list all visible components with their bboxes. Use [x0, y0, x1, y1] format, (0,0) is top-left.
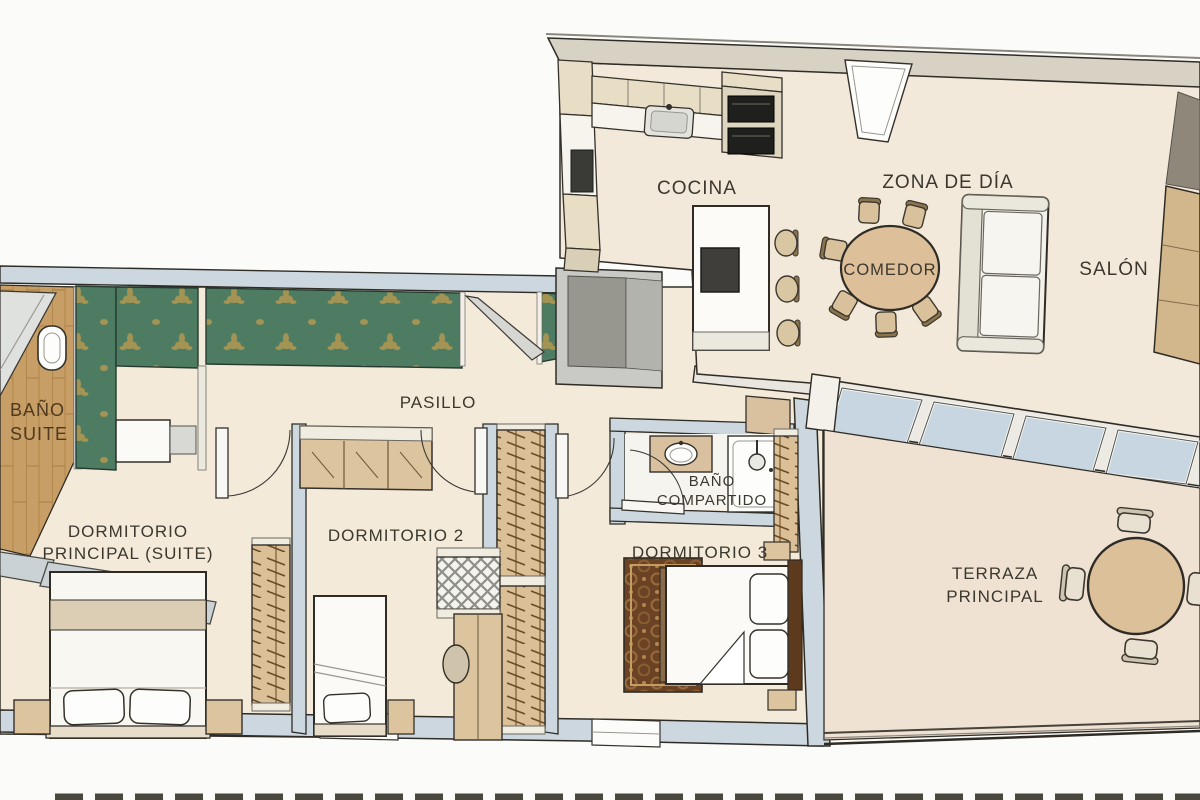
wardrobe-suite [252, 545, 290, 705]
wallpaper-wall-hall-left [206, 288, 462, 368]
chair-icon [857, 197, 880, 223]
floor-plan-canvas: COCINA ZONA DE DÍA COMEDOR SALÓN PASILLO… [0, 0, 1200, 800]
room-label-salon: SALÓN [1079, 258, 1148, 280]
room-label-bano-compartido-1: BAÑO [689, 473, 736, 490]
door-dorm-principal [216, 428, 228, 498]
pillow [63, 689, 124, 725]
pillow [750, 574, 788, 624]
glass-wall-post [806, 374, 840, 432]
room-label-zona-de-dia: ZONA DE DÍA [882, 172, 1013, 193]
wardrobe-dorm3 [774, 436, 798, 552]
room-label-cocina: COCINA [657, 178, 737, 199]
door-dorm-3 [556, 434, 568, 498]
entry-vestibule [556, 268, 662, 388]
nightstand [388, 700, 414, 734]
sofa [957, 195, 1048, 354]
room-label-comedor: COMEDOR [843, 261, 936, 279]
room-label-pasillo: PASILLO [400, 393, 477, 412]
room-label-dormitorio-3: DORMITORIO 3 [632, 543, 768, 562]
terrace-table [1088, 538, 1184, 634]
bed-dorm2 [314, 596, 386, 736]
nightstand [768, 690, 796, 710]
wardrobe-column-upper [497, 430, 545, 578]
stool-icon [777, 320, 800, 346]
terrace-zone [806, 374, 1200, 744]
stool-icon [775, 230, 798, 256]
bed-principal [46, 572, 210, 738]
desk-chair [443, 645, 469, 683]
room-label-dormitorio-principal-2: PRINCIPAL (SUITE) [43, 544, 214, 563]
room-label-dormitorio-principal-1: DORMITORIO [68, 522, 188, 541]
nightstand [206, 700, 242, 734]
oven-icon [728, 96, 774, 122]
door-dorm-2 [475, 428, 487, 494]
pillow [750, 630, 788, 678]
lattice-screen [437, 548, 500, 618]
kitchen-sink-icon [644, 102, 694, 138]
room-label-bano-suite-2: SUITE [10, 424, 68, 444]
pillow [129, 689, 190, 725]
chair-icon [1115, 507, 1153, 534]
room-label-terraza-1: TERRAZA [952, 564, 1038, 583]
room-label-bano-compartido-2: COMPARTIDO [657, 492, 767, 509]
appliance-icon [571, 150, 593, 192]
nightstand [14, 700, 50, 734]
chair-icon [1059, 565, 1086, 603]
floor-plan: COCINA ZONA DE DÍA COMEDOR SALÓN PASILLO… [0, 0, 1200, 800]
stool-icon [776, 276, 799, 302]
window-dormitorio-3 [592, 719, 660, 747]
room-label-dormitorio-2: DORMITORIO 2 [328, 526, 464, 545]
chair-icon [1122, 638, 1160, 665]
shower-head-icon [749, 454, 765, 470]
cooktop-icon [701, 248, 739, 292]
pillow [323, 693, 370, 723]
dressing-right-wall [198, 366, 206, 470]
wallpaper-wall-dressing-top [116, 287, 198, 368]
oven-icon [728, 128, 774, 154]
headboard [788, 560, 802, 690]
dorm3-furniture [624, 542, 802, 710]
dressing-cabinet [116, 420, 170, 462]
room-label-terraza-2: PRINCIPAL [946, 587, 1044, 606]
chair-icon [875, 312, 898, 338]
dressing-shelf [170, 426, 196, 454]
wallpaper-wall-dressing-left [76, 286, 116, 470]
wardrobe-column-lower [497, 586, 545, 728]
room-label-bano-suite-1: BAÑO [10, 399, 65, 420]
